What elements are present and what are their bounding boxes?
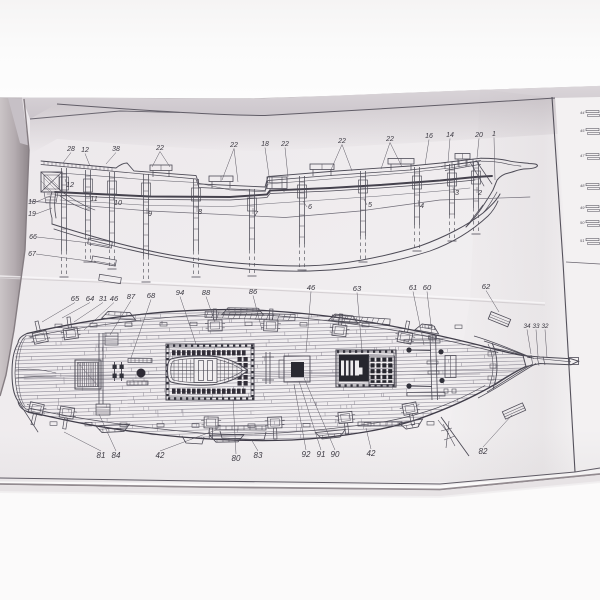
svg-text:4: 4 [420, 201, 424, 210]
svg-text:88: 88 [202, 288, 211, 297]
svg-text:51: 51 [580, 238, 584, 243]
svg-text:92: 92 [302, 450, 311, 459]
svg-text:18: 18 [261, 141, 269, 148]
svg-text:44: 44 [580, 110, 585, 115]
svg-text:8: 8 [198, 207, 202, 216]
svg-text:19: 19 [28, 211, 36, 218]
svg-text:50: 50 [580, 220, 585, 225]
svg-text:63: 63 [353, 284, 362, 293]
svg-text:62: 62 [482, 282, 491, 291]
svg-text:80: 80 [232, 454, 241, 463]
svg-text:9: 9 [148, 209, 152, 218]
svg-text:11: 11 [90, 194, 97, 203]
svg-text:12: 12 [66, 180, 74, 189]
svg-text:10: 10 [114, 198, 122, 207]
svg-text:84: 84 [112, 451, 121, 460]
svg-text:2: 2 [477, 188, 482, 197]
svg-text:94: 94 [176, 288, 184, 297]
svg-text:64: 64 [86, 294, 94, 303]
svg-text:46: 46 [110, 294, 119, 303]
svg-text:3: 3 [455, 188, 459, 197]
svg-text:31: 31 [99, 294, 107, 303]
svg-text:60: 60 [423, 283, 432, 292]
svg-text:83: 83 [254, 451, 263, 460]
svg-text:33: 33 [532, 323, 540, 330]
svg-text:81: 81 [97, 451, 106, 460]
svg-text:65: 65 [71, 294, 80, 303]
svg-text:66: 66 [29, 234, 37, 241]
svg-text:82: 82 [479, 447, 488, 456]
svg-text:45: 45 [580, 128, 585, 133]
svg-text:22: 22 [155, 145, 164, 152]
svg-text:86: 86 [249, 287, 258, 296]
svg-text:6: 6 [308, 202, 312, 211]
svg-text:67: 67 [28, 251, 37, 258]
svg-text:87: 87 [127, 292, 136, 301]
svg-text:14: 14 [446, 132, 454, 139]
svg-text:42: 42 [367, 449, 376, 458]
svg-text:34: 34 [523, 323, 531, 330]
svg-text:61: 61 [409, 283, 417, 292]
svg-text:20: 20 [474, 132, 483, 139]
svg-text:28: 28 [66, 146, 75, 153]
svg-text:68: 68 [147, 291, 156, 300]
svg-text:12: 12 [81, 147, 89, 154]
svg-text:32: 32 [541, 323, 549, 330]
svg-text:16: 16 [425, 133, 433, 140]
svg-text:22: 22 [337, 138, 346, 145]
svg-text:48: 48 [580, 183, 585, 188]
svg-text:47: 47 [580, 153, 585, 158]
svg-text:22: 22 [229, 142, 238, 149]
svg-text:38: 38 [112, 146, 120, 153]
svg-text:49: 49 [580, 205, 585, 210]
svg-text:18: 18 [28, 199, 36, 206]
svg-text:22: 22 [280, 141, 289, 148]
svg-text:1: 1 [492, 131, 496, 138]
svg-text:42: 42 [156, 451, 165, 460]
svg-text:90: 90 [331, 450, 340, 459]
svg-text:91: 91 [317, 450, 326, 459]
svg-text:22: 22 [385, 136, 394, 143]
svg-text:46: 46 [307, 283, 316, 292]
